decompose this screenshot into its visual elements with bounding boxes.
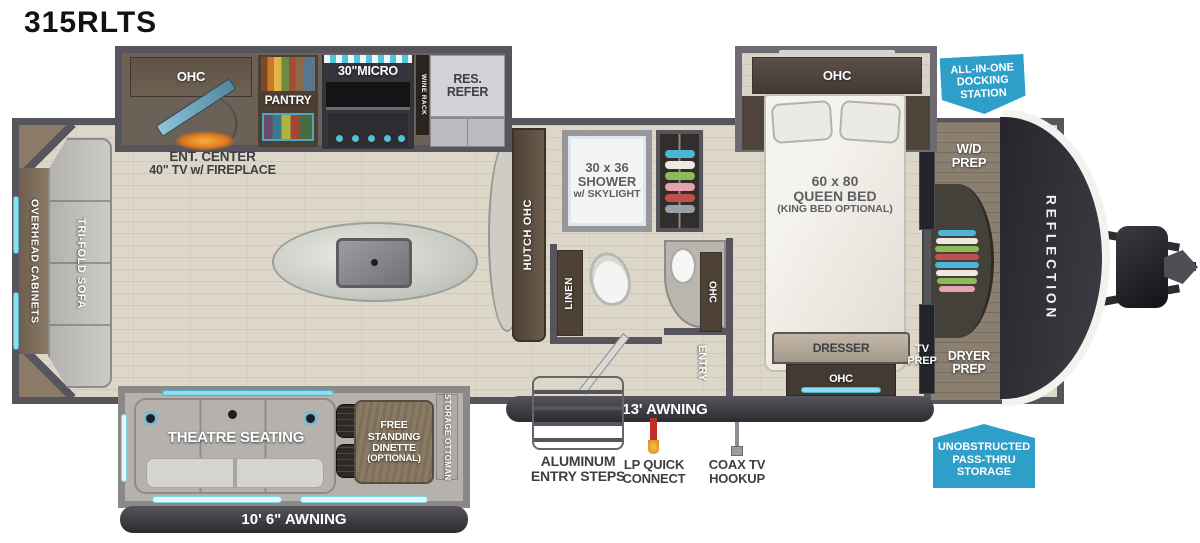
- lp-flame-icon: [648, 440, 659, 454]
- dinette-label-3: DINETTE: [372, 443, 416, 454]
- dresser-ohc-label: OHC: [829, 374, 853, 386]
- wine-rack-label: WINE RACK: [419, 74, 426, 115]
- pantry-shelves-icon: [261, 57, 315, 91]
- tri-fold-sofa: TRI-FOLD SOFA: [48, 138, 112, 388]
- bedroom-window-icon: [779, 50, 895, 55]
- wd-prep-line2: PREP: [938, 156, 1000, 170]
- pass-thru-line1: UNOBSTRUCTED: [933, 441, 1035, 454]
- front-cap: REFLECTION: [1000, 117, 1102, 399]
- theatre-label: THEATRE SEATING: [168, 430, 304, 446]
- sofa-label: TRI-FOLD SOFA: [74, 218, 86, 309]
- range-vent-icon: [324, 55, 412, 63]
- ent-center-label: ENT. CENTER 40" TV w/ FIREPLACE: [130, 150, 295, 177]
- dresser: DRESSER: [772, 332, 910, 364]
- ent-center-line1: ENT. CENTER: [130, 150, 295, 164]
- bath-ohc-label: OHC: [706, 281, 717, 303]
- res-refrigerator: RES. REFER: [430, 55, 505, 149]
- coax-line2: HOOKUP: [696, 472, 778, 486]
- dinette-label-2: STANDING: [368, 432, 420, 443]
- clothes-icon: [665, 172, 695, 180]
- microwave-icon: [326, 82, 410, 110]
- storage-ottoman: STORAGE OTTOMAN: [436, 394, 458, 480]
- nightstand-icon: [742, 96, 766, 150]
- lp-line1: LP QUICK: [612, 458, 696, 472]
- bed-label-1: 60 x 80: [766, 174, 904, 189]
- overhead-cabinets: OVERHEAD CABINETS: [19, 168, 49, 354]
- pass-thru-badge: UNOBSTRUCTED PASS-THRU STORAGE: [933, 424, 1035, 488]
- coax-label: COAX TV HOOKUP: [696, 458, 778, 485]
- dresser-label: DRESSER: [813, 342, 870, 355]
- pillow-icon: [839, 100, 902, 144]
- bed-label-3: (KING BED OPTIONAL): [766, 204, 904, 215]
- bath-wall: [550, 337, 662, 344]
- hutch-ohc: HUTCH OHC: [512, 128, 546, 342]
- bath-wall: [550, 244, 557, 344]
- page-title: 315RLTS: [24, 6, 157, 40]
- bath-bedroom-wall: [726, 238, 733, 402]
- pantry-cabinet: PANTRY: [258, 55, 318, 147]
- overhead-cabinets-label: OVERHEAD CABINETS: [28, 199, 39, 324]
- dryer-prep-line2: PREP: [938, 363, 1000, 376]
- bath-ohc: OHC: [700, 252, 722, 332]
- coax-line1: COAX TV: [696, 458, 778, 472]
- theatre-label-wrap: THEATRE SEATING: [146, 428, 326, 448]
- dinette-label-1: FREE: [380, 420, 407, 431]
- kitchen-ohc-label: OHC: [177, 70, 205, 84]
- clothes-icon: [665, 150, 695, 158]
- entry-area: ENTRY: [690, 328, 712, 398]
- entry-label: ENTRY: [695, 345, 707, 381]
- bath-sink-icon: [670, 248, 696, 284]
- slide-window-icon: [152, 496, 282, 503]
- main-awning-label: 13' AWNING: [622, 401, 708, 418]
- wd-prep-label: W/D PREP: [938, 142, 1000, 169]
- lp-label: LP QUICK CONNECT: [612, 458, 696, 485]
- slide-window-icon: [300, 496, 428, 503]
- kitchen-range-stack: 30"MICRO: [322, 55, 414, 149]
- refer-body: RES. REFER: [430, 55, 505, 117]
- rear-window-icon: [13, 196, 19, 254]
- linen-label: LINEN: [565, 277, 576, 310]
- pillow-icon: [771, 100, 834, 144]
- pass-thru-line3: STORAGE: [933, 466, 1035, 479]
- shower-label-1: 30 x 36: [585, 161, 628, 175]
- bedroom-ohc-label: OHC: [823, 69, 851, 83]
- fireplace-glow-icon: [176, 132, 234, 150]
- clothes-icon: [936, 270, 978, 276]
- floorplan-315rlts: 315RLTS OVERHEAD CABINETS TRI-FOLD SOFA …: [0, 0, 1200, 543]
- lp-line2: CONNECT: [612, 472, 696, 486]
- rear-awning-bar: 10' 6" AWNING: [120, 506, 468, 533]
- hitch-coupler-icon: [1164, 250, 1198, 284]
- queen-bed: 60 x 80 QUEEN BED (KING BED OPTIONAL): [764, 94, 906, 372]
- clothes-icon: [665, 205, 695, 213]
- wine-rack: WINE RACK: [416, 55, 429, 135]
- hanging-clothes-closet: [656, 130, 703, 232]
- clothes-icon: [936, 238, 978, 244]
- linen-closet: LINEN: [557, 250, 583, 336]
- coax-cable-icon: [735, 422, 739, 448]
- clothes-icon: [937, 278, 977, 284]
- brand-label: REFLECTION: [1044, 195, 1059, 321]
- storage-ottoman-label: STORAGE OTTOMAN: [443, 394, 451, 480]
- dinette-label-4: (OPTIONAL): [367, 454, 420, 464]
- dresser-window-icon: [801, 387, 881, 393]
- pass-thru-line2: PASS-THRU: [933, 454, 1035, 467]
- refer-doors-icon: [430, 117, 505, 147]
- pantry-canned-goods-icon: [262, 113, 314, 141]
- bedroom-ohc-cabinet: OHC: [752, 57, 922, 94]
- mirror-door-icon: [919, 140, 935, 230]
- pantry-label: PANTRY: [265, 94, 312, 107]
- burner-icon: [336, 135, 343, 142]
- pantry-label-wrap: PANTRY: [258, 91, 318, 109]
- cupholder-icon: [306, 414, 315, 423]
- free-standing-dinette: FREE STANDING DINETTE (OPTIONAL): [354, 400, 434, 484]
- coax-connector-icon: [731, 446, 743, 456]
- entry-steps-icon: [532, 376, 624, 450]
- docking-station-badge: ALL-IN-ONE DOCKING STATION: [940, 54, 1027, 116]
- clothes-icon: [665, 183, 695, 191]
- clothes-icon: [665, 161, 695, 169]
- clothes-icon: [935, 262, 979, 268]
- shower-label-3: w/ SKYLIGHT: [573, 189, 640, 200]
- refer-label-2: REFER: [447, 86, 488, 99]
- micro-label-wrap: 30"MICRO: [322, 64, 414, 80]
- clothes-icon: [939, 286, 975, 292]
- kitchen-ohc-cabinet: OHC: [130, 57, 252, 97]
- propane-tank-icon: [1116, 226, 1168, 308]
- slide-window-icon: [162, 390, 334, 396]
- shower-label-2: SHOWER: [578, 175, 637, 189]
- microwave-label: 30"MICRO: [338, 65, 398, 78]
- bed-label: 60 x 80 QUEEN BED (KING BED OPTIONAL): [766, 174, 904, 216]
- clothes-icon: [938, 230, 976, 236]
- dresser-ohc: OHC: [786, 364, 896, 396]
- cupholder-icon: [228, 410, 237, 419]
- cupholder-icon: [146, 414, 155, 423]
- slide-window-icon: [121, 414, 127, 482]
- cooktop-icon: [328, 113, 408, 147]
- theatre-footrest-icon: [146, 458, 324, 488]
- dryer-prep-label: DRYER PREP: [938, 350, 1000, 376]
- rear-awning-label: 10' 6" AWNING: [241, 511, 346, 528]
- clothes-icon: [665, 194, 695, 202]
- nightstand-icon: [904, 96, 930, 150]
- hutch-ohc-label: HUTCH OHC: [523, 199, 535, 270]
- faucet-icon: [371, 259, 378, 266]
- shower: 30 x 36 SHOWER w/ SKYLIGHT: [562, 130, 652, 232]
- rear-window-icon: [13, 292, 19, 350]
- lp-connect-icon: [650, 418, 657, 442]
- ent-center-line2: 40" TV w/ FIREPLACE: [130, 164, 295, 177]
- clothes-icon: [935, 246, 979, 252]
- bed-label-2: QUEEN BED: [766, 189, 904, 204]
- clothes-icon: [935, 254, 979, 260]
- wd-prep-line1: W/D: [938, 142, 1000, 156]
